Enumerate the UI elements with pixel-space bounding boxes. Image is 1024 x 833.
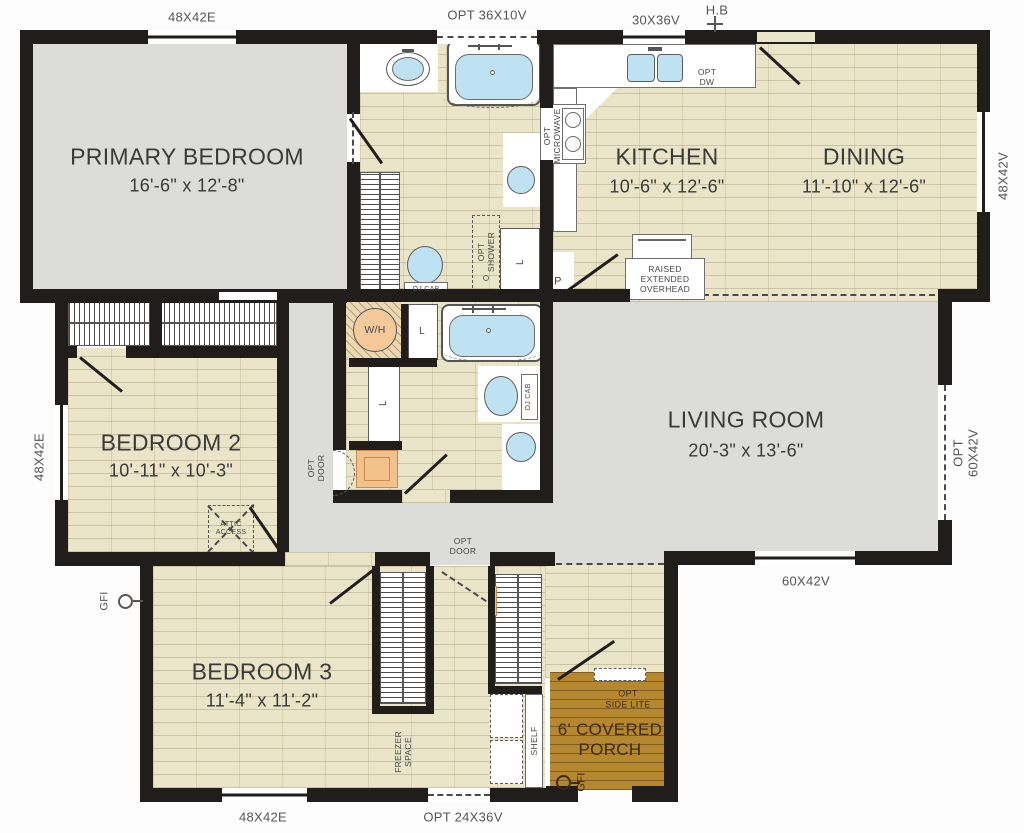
hall-toilet xyxy=(484,376,518,416)
primary-bath-sink-bowl xyxy=(392,57,424,81)
opt-door-hall-label: OPT DOOR xyxy=(306,455,326,482)
hall-tub-handle-right xyxy=(492,304,494,313)
microwave-arc-bottom xyxy=(565,136,581,152)
wall-kitchen-bottom xyxy=(545,289,630,302)
floor-plan: PRIMARY BEDROOM 16'-6" x 12'-8" KITCHEN … xyxy=(0,0,1024,833)
opt-dw-label: OPT DW xyxy=(698,67,716,87)
window-bed2-48x42e xyxy=(55,405,68,500)
bedroom3-label: BEDROOM 3 xyxy=(192,658,333,685)
shelf-label: SHELF xyxy=(529,727,539,756)
opt-microwave-label: OPT MICROWAVE xyxy=(542,108,562,163)
kitchen-label: KITCHEN xyxy=(615,143,718,170)
hall-tub-faucet xyxy=(462,308,506,310)
kitchen-sink-left xyxy=(627,54,655,82)
primary-tub-drain xyxy=(490,70,495,75)
wall-closet2-divider xyxy=(150,302,162,346)
bedroom2-dims: 10'-11" x 10'-3" xyxy=(109,460,233,481)
range-handle xyxy=(638,239,686,241)
raised-overhead-label: RAISED EXTENDED OVERHEAD xyxy=(640,264,690,294)
wall-bed3-closet-right xyxy=(426,566,434,712)
window-opt-24x36v xyxy=(428,788,490,802)
opt-door-rear-label: OPT DOOR xyxy=(450,536,477,556)
primary-bedroom-dims: 16'-6" x 12'-8" xyxy=(129,175,244,196)
bedroom2-label: BEDROOM 2 xyxy=(101,429,242,456)
oj-cab-primary-label: OJ CAB xyxy=(412,286,439,294)
dining-label: DINING xyxy=(823,143,905,170)
window-kitchen-30x36v xyxy=(623,30,685,44)
wall-bed3-closet-bottom xyxy=(372,706,434,714)
linen-hall-upper-label: L xyxy=(419,326,425,338)
microwave-arc-top xyxy=(565,112,581,128)
entry-hall-floor xyxy=(545,565,664,678)
wall-bath2-wh-divider xyxy=(401,304,408,358)
wall-bottom-1 xyxy=(140,788,222,802)
wall-utility-closet-bottom xyxy=(488,686,542,694)
opt-washer-box xyxy=(490,694,523,738)
wall-closet2-bottom-right xyxy=(126,346,289,358)
wall-bath2-divider-1 xyxy=(349,358,437,367)
wall-bath1-left-top xyxy=(347,44,360,114)
opt-shower-label: OPT SHOWER xyxy=(476,232,496,272)
wall-bath2-left xyxy=(333,302,346,450)
primary-bedroom-label: PRIMARY BEDROOM xyxy=(70,143,304,170)
entry-living-transition xyxy=(556,563,664,565)
window-label-dining-right: 48X42V xyxy=(995,152,1010,200)
bedroom2-closet xyxy=(68,302,277,346)
gfi-left-stem xyxy=(133,600,143,602)
water-heater-label: W/H xyxy=(364,324,385,336)
window-label-tub: OPT 36X10V xyxy=(447,7,526,22)
gfi-left-symbol xyxy=(118,594,133,609)
wall-bath2-divider-2 xyxy=(349,441,402,450)
opt-shower-drain xyxy=(483,275,489,281)
gfi-left-label: GFI xyxy=(99,591,112,610)
window-label-kitchen: 30X36V xyxy=(632,12,680,27)
entry-door-opening xyxy=(757,32,815,42)
wall-bottom-2 xyxy=(307,788,428,802)
bedroom2-closet-rod xyxy=(68,322,277,324)
linen-hall-lower-label: L xyxy=(378,400,390,406)
wall-rear-hall-1 xyxy=(375,552,430,566)
attic-access-label: ATTIC ACCESS xyxy=(216,521,247,538)
wall-bottom-bed2 xyxy=(55,552,285,566)
window-label-bed2-left: 48X42E xyxy=(31,433,46,481)
primary-tub-curtain xyxy=(443,86,541,108)
bedroom3-dims: 11'-4" x 11'-2" xyxy=(206,690,319,711)
primary-bath-sink-faucet xyxy=(402,49,414,52)
porch-label: 6' COVERED PORCH xyxy=(558,720,663,760)
range xyxy=(632,234,692,260)
window-label-bed3-bottom: 48X42E xyxy=(239,809,287,824)
primary-tub-faucet xyxy=(468,45,512,47)
bed3-door-opening xyxy=(285,552,375,566)
wall-closet2-bottom-left xyxy=(55,346,77,358)
wall-left-bed3 xyxy=(140,552,153,802)
window-label-living-right: OPT 60X42V xyxy=(951,424,982,482)
kitchen-faucet xyxy=(648,47,662,51)
living-room-dims: 20'-3" x 13'-6" xyxy=(688,440,803,461)
window-opt-36x10v xyxy=(437,30,537,44)
washer-unit-inner xyxy=(364,457,390,481)
opt-dryer-box xyxy=(490,740,523,784)
wall-rear-hall-2 xyxy=(490,552,555,566)
kitchen-dims: 10'-6" x 12'-6" xyxy=(609,176,724,197)
wall-utility-closet-left xyxy=(488,566,495,692)
wall-bath1-left-bottom xyxy=(347,162,360,302)
gfi-porch-label: GFI xyxy=(576,772,589,791)
hall-tub-handle-left xyxy=(472,304,474,313)
dining-living-transition xyxy=(703,294,935,296)
window-bed3-48x42e xyxy=(222,788,307,802)
hall-tub-drain xyxy=(486,328,491,333)
opt-side-lite-label: OPT SIDE LITE xyxy=(605,688,650,709)
oj-cab-hall-label: OJ CAB xyxy=(525,383,533,410)
kitchen-sink-right xyxy=(657,54,683,82)
wall-left-primary xyxy=(20,30,33,302)
wall-bottom-3 xyxy=(490,788,548,802)
bedroom3-closet-rod xyxy=(402,572,404,704)
linen-primary-label: L xyxy=(515,259,527,265)
wall-primary-bottom xyxy=(20,289,347,303)
gfi-porch-symbol xyxy=(556,775,571,790)
wall-kitchen-left-main xyxy=(540,160,553,503)
porch-post-right xyxy=(632,786,664,802)
hose-bib-tick xyxy=(707,23,723,25)
window-top-left-48x42e xyxy=(148,30,236,44)
window-dining-48x42v xyxy=(977,112,990,212)
utility-closet-rod xyxy=(517,574,519,684)
hose-bib-label: H.B xyxy=(706,2,729,17)
hall-bath-sink xyxy=(506,432,536,462)
wall-bed3-closet-left xyxy=(372,566,380,712)
wall-kitchen-left-top xyxy=(540,44,553,108)
wall-bath2-top xyxy=(333,289,553,302)
primary-bath-vanity-sink xyxy=(507,166,535,194)
cased-opening-primary xyxy=(219,290,277,302)
bath2-door-opening xyxy=(402,490,450,503)
dining-dims: 11'-10" x 12'-6" xyxy=(802,176,926,197)
primary-closet-rod xyxy=(379,172,381,296)
window-living-60x42v xyxy=(755,551,855,565)
wall-bed2-right xyxy=(277,302,289,554)
hall-tub-curtain xyxy=(443,342,541,362)
window-label-utility-bottom: OPT 24X36V xyxy=(423,809,502,824)
wall-right-porch xyxy=(664,551,678,802)
window-label-top-left: 48X42E xyxy=(168,9,216,24)
living-room-label: LIVING ROOM xyxy=(668,406,825,433)
window-label-living-bottom: 60X42V xyxy=(782,573,830,588)
pantry-label: P xyxy=(554,276,562,289)
freezer-space-label: FREEZER SPACE xyxy=(393,731,413,773)
side-lite-window xyxy=(594,668,646,681)
primary-toilet xyxy=(407,246,443,284)
